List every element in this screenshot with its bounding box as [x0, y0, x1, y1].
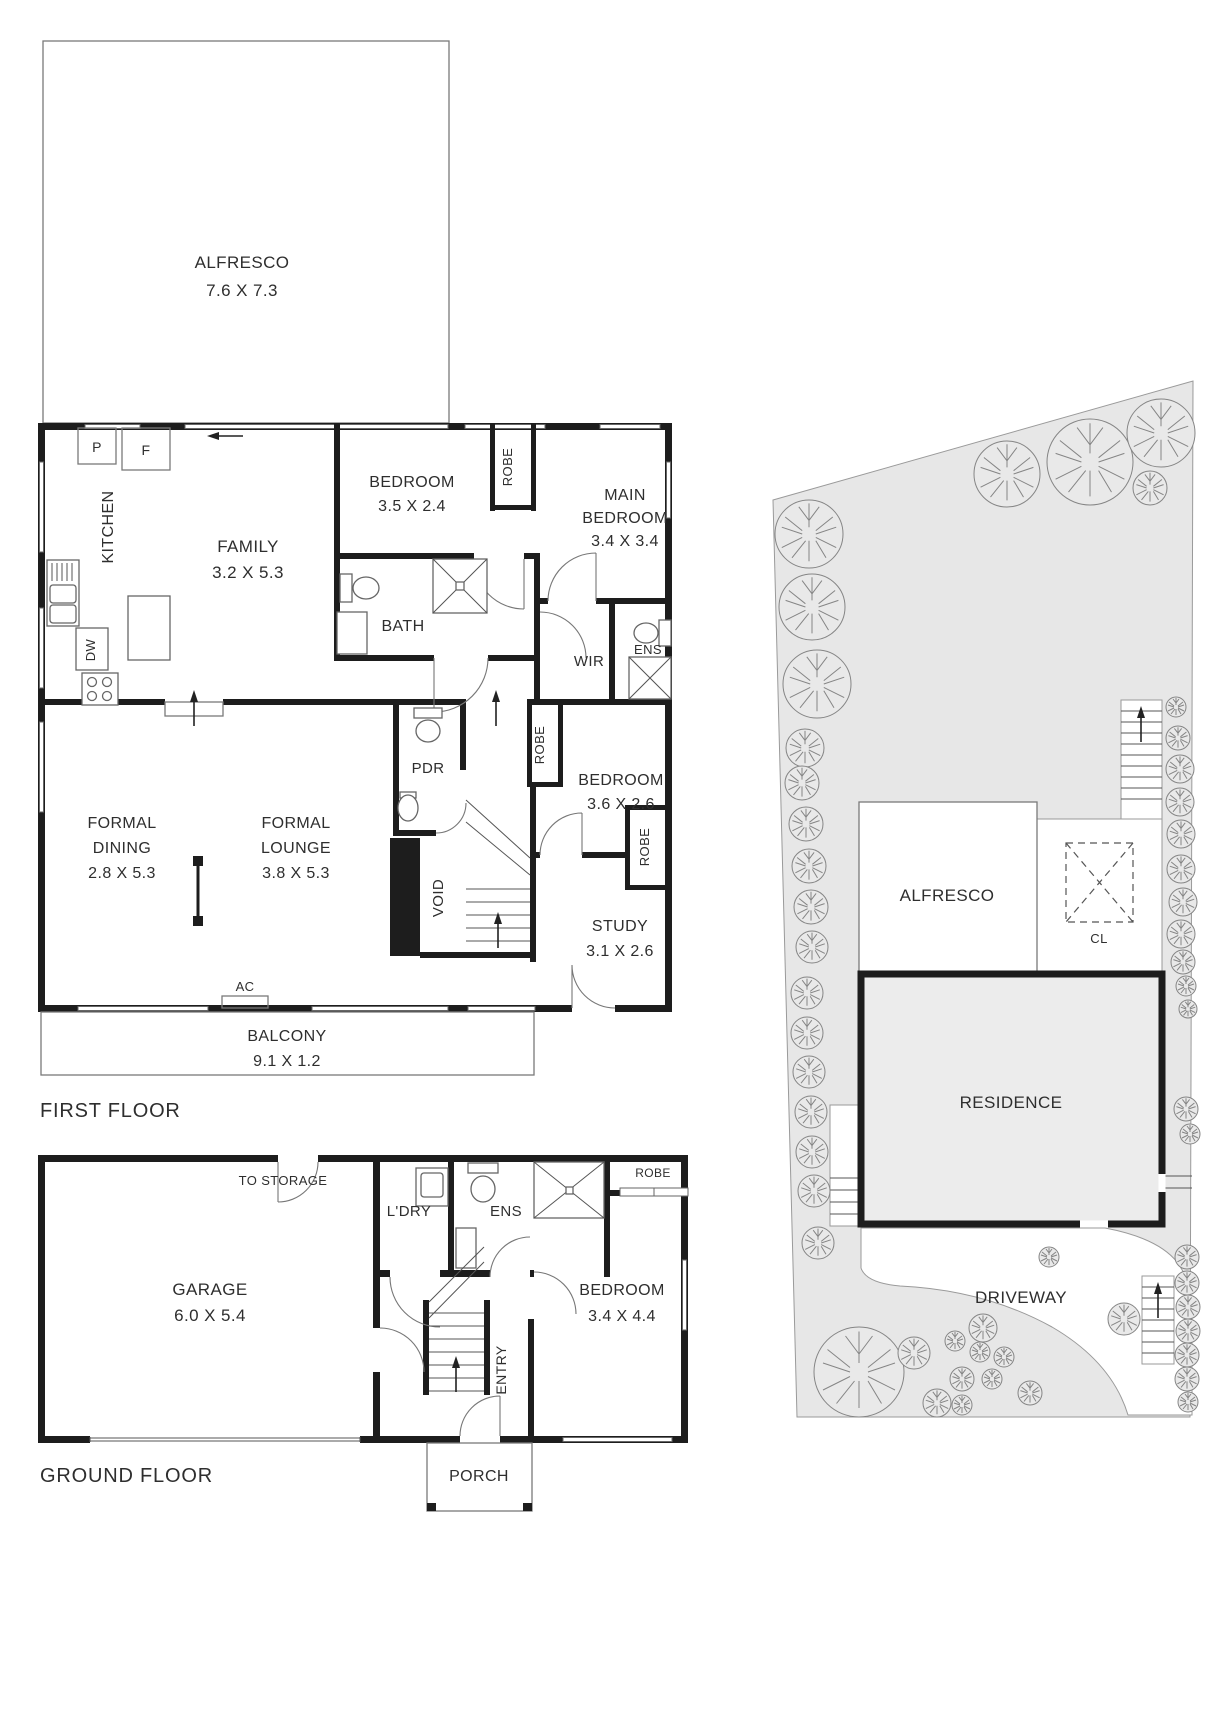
kitchen-fixtures [47, 428, 170, 705]
floorplan-drawing: ALFRESCO 7.6 X 7.3 [0, 0, 1224, 1736]
label-robe-ground: ROBE [635, 1166, 671, 1180]
label-bedroom-ground-dims: 3.4 X 4.4 [588, 1308, 656, 1325]
site-stairs-top [1121, 700, 1162, 819]
bath-fixtures [337, 559, 487, 654]
main-bedroom-door [548, 553, 596, 601]
label-ens: ENS [634, 642, 662, 657]
label-porch: PORCH [449, 1468, 509, 1485]
step-arrow [190, 690, 198, 726]
side-path [830, 1105, 861, 1226]
label-wir: WIR [574, 653, 604, 670]
label-driveway: DRIVEWAY [975, 1288, 1067, 1307]
label-kitchen: KITCHEN [100, 490, 117, 563]
label-clothesline: CL [1090, 931, 1107, 946]
label-pantry: P [92, 439, 102, 455]
label-bedroom3: BEDROOM [578, 772, 663, 789]
label-formal-lounge-2: LOUNGE [261, 840, 331, 857]
bedroom3-door [540, 813, 582, 855]
first-floor-stairs [466, 800, 530, 948]
label-formal-dining-1: FORMAL [87, 815, 156, 832]
label-formal-dining-dims: 2.8 X 5.3 [88, 865, 156, 882]
label-study-dims: 3.1 X 2.6 [586, 943, 654, 960]
label-pdr: PDR [412, 760, 445, 777]
label-residence: RESIDENCE [960, 1093, 1063, 1112]
court [1037, 819, 1162, 974]
label-garage: GARAGE [172, 1280, 247, 1299]
first-floor-plan: ALFRESCO 7.6 X 7.3 [38, 41, 672, 1122]
robe-ground-doors [620, 1188, 688, 1196]
label-to-storage: TO STORAGE [239, 1173, 328, 1188]
ground-floor-stairs [429, 1247, 484, 1392]
label-main-bedroom-dims: 3.4 X 3.4 [591, 533, 659, 550]
label-main-bedroom-1: MAIN [604, 487, 646, 504]
label-bedroom-ground: BEDROOM [579, 1282, 664, 1299]
label-fridge: F [142, 442, 151, 458]
label-robe-bedroom2: ROBE [500, 448, 515, 486]
label-garage-dims: 6.0 X 5.4 [174, 1306, 246, 1325]
label-main-bedroom-2: BEDROOM [582, 510, 667, 527]
label-study: STUDY [592, 918, 648, 935]
wir-door [540, 612, 586, 658]
label-formal-lounge-dims: 3.8 X 5.3 [262, 865, 330, 882]
laundry-door [390, 1277, 440, 1327]
pdr-door [436, 803, 466, 833]
label-formal-dining-2: DINING [93, 840, 151, 857]
ground-floor-plan: TO STORAGE GARAGE 6.0 X 5.4 L'DRY ENS RO… [38, 1155, 688, 1511]
label-ens-ground: ENS [490, 1203, 522, 1220]
ens-door-ground [490, 1237, 530, 1277]
garage-internal-door [380, 1328, 424, 1372]
ens-fixtures [629, 620, 671, 699]
label-entry: ENTRY [493, 1345, 509, 1394]
label-first-floor: FIRST FLOOR [40, 1100, 181, 1122]
label-balcony: BALCONY [247, 1028, 326, 1045]
label-bath: BATH [381, 618, 424, 635]
label-robe-study: ROBE [637, 828, 652, 866]
slider-direction-arrow [207, 432, 243, 440]
study-door [572, 965, 615, 1008]
label-alfresco-dims: 7.6 X 7.3 [206, 281, 278, 300]
label-laundry: L'DRY [387, 1203, 432, 1220]
first-floor-alfresco-outline [43, 41, 449, 423]
label-bedroom2: BEDROOM [369, 474, 454, 491]
label-ground-floor: GROUND FLOOR [40, 1465, 213, 1487]
island-bench [128, 596, 170, 660]
label-family-dims: 3.2 X 5.3 [212, 563, 284, 582]
label-void: VOID [430, 879, 447, 917]
label-bedroom2-dims: 3.5 X 2.4 [378, 498, 446, 515]
floorplan-page: ALFRESCO 7.6 X 7.3 [0, 0, 1224, 1736]
bedroom-door-ground [534, 1272, 576, 1314]
site-stairs-bottom [1142, 1276, 1174, 1364]
label-formal-lounge-1: FORMAL [261, 815, 330, 832]
cooktop [82, 673, 118, 705]
label-family: FAMILY [217, 537, 279, 556]
label-balcony-dims: 9.1 X 1.2 [253, 1053, 321, 1070]
label-bedroom3-dims: 3.6 X 2.6 [587, 796, 655, 813]
stair-top-arrow [492, 690, 500, 726]
label-robe-bedroom3: ROBE [532, 726, 547, 764]
label-alfresco: ALFRESCO [195, 253, 290, 272]
front-door [460, 1396, 500, 1436]
label-dw: DW [83, 638, 98, 661]
site-plan: ALFRESCO CL RESIDENCE DRIVEWAY [773, 381, 1200, 1417]
sliding-door [185, 425, 448, 429]
post [193, 856, 203, 926]
label-ac: AC [236, 979, 255, 994]
label-site-alfresco: ALFRESCO [900, 886, 995, 905]
laundry-fixtures [416, 1168, 448, 1206]
